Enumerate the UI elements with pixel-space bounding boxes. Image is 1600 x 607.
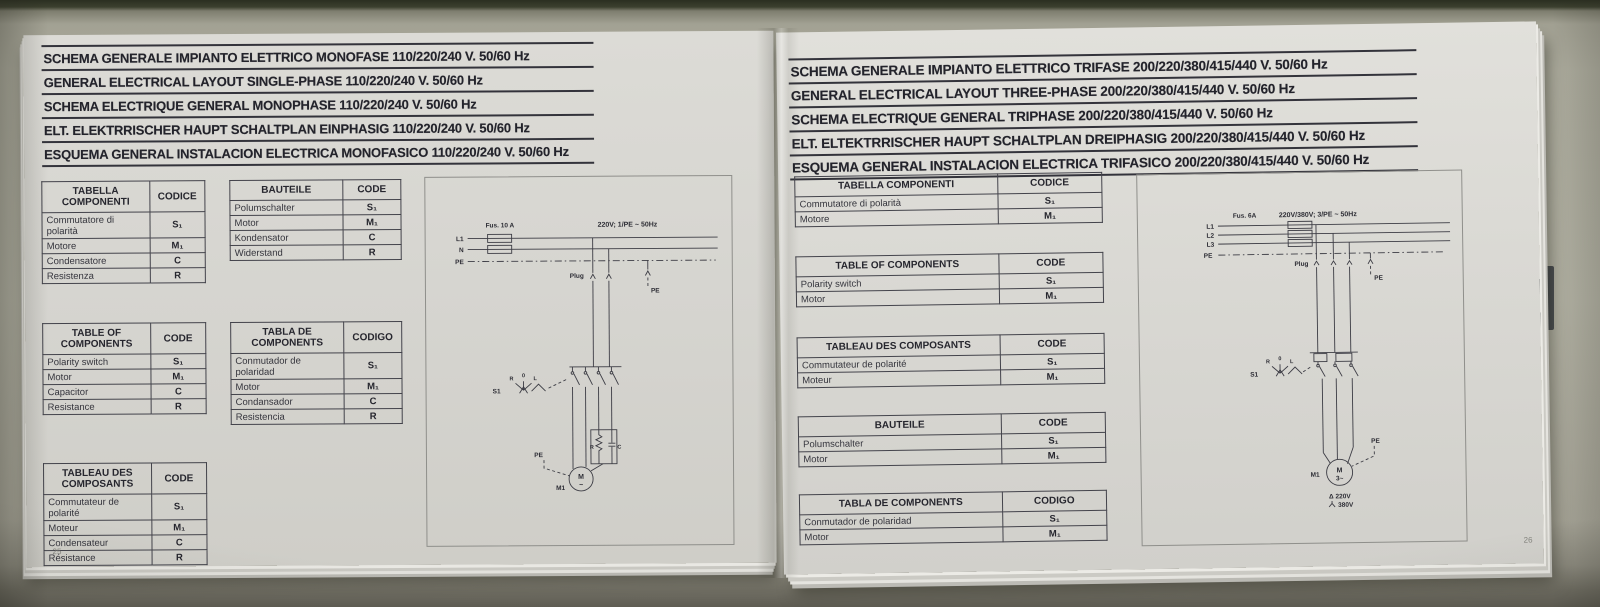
title-line: SCHEMA ELECTRIQUE GENERAL MONOPHASE 110/… [42, 92, 594, 119]
supply-label: 220V; 1/PE ~ 50Hz [598, 221, 658, 228]
title-line: GENERAL ELECTRICAL LAYOUT SINGLE-PHASE 1… [42, 68, 594, 95]
components-table-german: BAUTEILE CODE PolumschalterS₁ MotorM₁ [798, 412, 1107, 468]
fuse-symbol [488, 234, 512, 253]
table-row: MotorM₁ [800, 525, 1107, 545]
table-row: Commutatore di polaritàS₁ [42, 212, 205, 239]
table-header: CODE [1000, 333, 1105, 355]
table-row: CondensateurC [44, 535, 207, 551]
table-header: CODICE [149, 181, 205, 212]
table-row: CondensatoreC [42, 253, 205, 269]
three-phase-diagram: Fus. 6A 220V/380V; 3/PE ~ 50Hz L1 L2 L3 … [1136, 170, 1467, 547]
table-row: ResistenzaR [42, 268, 205, 284]
line-pe-label: PE [455, 259, 464, 266]
table-row: MoteurM₁ [44, 520, 207, 536]
plug-label: Plug [1294, 261, 1308, 268]
components-table-french: TABLEAU DES COMPOSANTS CODE Commutateur … [43, 462, 208, 566]
polarity-switch-symbol [1310, 352, 1360, 464]
motor-pe-label: PE [534, 452, 543, 459]
table-header: CODE [150, 323, 206, 354]
fuse-label: Fus. 10 A [486, 222, 515, 229]
supply-label: 220V/380V; 3/PE ~ 50Hz [1279, 211, 1358, 219]
pe-drop-label: PE [651, 287, 660, 294]
single-phase-schematic: Fus. 10 A 220V; 1/PE ~ 50Hz L1 N PE [425, 176, 733, 546]
table-row: MotorM₁ [796, 287, 1103, 307]
table-row: MotoreM₁ [42, 238, 205, 254]
line-l1-label: L1 [1206, 224, 1214, 231]
left-title-block: SCHEMA GENERALE IMPIANTO ELETTRICO MONOF… [41, 42, 594, 167]
components-table-italian: TABELLA COMPONENTI CODICE Commutatore di… [794, 172, 1103, 228]
page-number: 26 [1524, 536, 1533, 545]
table-row: MotorM₁ [799, 447, 1106, 467]
position-l-label: L [1290, 359, 1294, 365]
capacitor-label: C [617, 445, 621, 451]
table-header: TABELLA COMPONENTI [42, 181, 150, 213]
table-header: TABLE OF COMPONENTS [43, 323, 151, 355]
motor-code-label: M1 [556, 485, 565, 492]
components-table-english: TABLE OF COMPONENTS CODE Polarity switch… [42, 322, 207, 415]
selector-switch-symbol [1272, 364, 1311, 377]
page-number: 25 [53, 547, 62, 556]
table-header: BAUTEILE [230, 180, 343, 201]
table-header: CODE [998, 252, 1103, 274]
title-line: ELT. ELEKTRRISCHER HAUPT SCHALTPLAN EINP… [42, 116, 594, 143]
line-n-label: N [459, 247, 464, 254]
table-row: MotorM₁ [230, 214, 401, 230]
selector-label: S1 [493, 388, 501, 395]
table-row: WiderstandR [230, 244, 401, 260]
table-row: ResistanceR [43, 399, 206, 415]
polarity-switch-symbol [569, 367, 622, 469]
resistor-capacitor-symbol [591, 430, 617, 471]
components-table-english: TABLE OF COMPONENTS CODE Polarity switch… [795, 252, 1104, 308]
three-phase-schematic: Fus. 6A 220V/380V; 3/PE ~ 50Hz L1 L2 L3 … [1137, 171, 1466, 546]
selector-switch-symbol [515, 379, 567, 393]
table-header: CODICE [997, 172, 1102, 194]
position-r-label: R [509, 376, 513, 382]
table-row: MoteurM₁ [798, 368, 1105, 388]
single-phase-diagram: Fus. 10 A 220V; 1/PE ~ 50Hz L1 N PE [424, 175, 734, 547]
motor-phase-label: ~ [579, 482, 583, 489]
table-row: RésistanceR [44, 550, 207, 566]
line-pe-label: PE [1204, 253, 1213, 260]
pe-drop-symbol [645, 260, 650, 288]
motor-symbol [1326, 446, 1375, 486]
left-page: SCHEMA GENERALE IMPIANTO ELETTRICO MONOF… [23, 31, 776, 568]
pe-drop-label: PE [1374, 275, 1383, 282]
line-l2-label: L2 [1206, 233, 1214, 240]
table-row: PolumschalterS₁ [230, 199, 401, 215]
motor-phase-label: 3~ [1336, 475, 1344, 482]
delta-voltage-label: Δ 220V [1329, 493, 1351, 500]
position-0-label: 0 [522, 373, 525, 379]
position-r-label: R [1266, 359, 1270, 365]
components-table-spanish: TABLA DE COMPONENTS CODIGO Conmutador de… [230, 321, 403, 425]
plug-symbol [1313, 224, 1353, 353]
table-row: CondansadorC [231, 393, 402, 409]
motor-code-label: M1 [1311, 472, 1321, 479]
table-row: Commutateur de polaritéS₁ [44, 494, 207, 521]
line-l3-label: L3 [1207, 242, 1215, 249]
right-title-block: SCHEMA GENERALE IMPIANTO ELETTRICO TRIFA… [788, 49, 1418, 180]
table-header: CODIGO [1002, 490, 1107, 512]
plug-symbol [590, 238, 612, 367]
title-line: SCHEMA GENERALE IMPIANTO ELETTRICO MONOF… [41, 44, 593, 71]
position-l-label: L [533, 376, 537, 382]
table-row: MotorM₁ [231, 378, 402, 394]
table-row: CapacitorC [43, 384, 206, 400]
table-row: KondensatorC [230, 229, 401, 245]
line-l1-label: L1 [456, 236, 464, 243]
star-symbol [1329, 501, 1335, 507]
components-table-french: TABLEAU DES COMPOSANTS CODE Commutateur … [797, 333, 1106, 389]
table-header: CODIGO [344, 321, 402, 352]
table-row: MotorM₁ [43, 369, 206, 385]
table-header: TABLEAU DES COMPOSANTS [43, 463, 151, 495]
book-photo: SCHEMA GENERALE IMPIANTO ELETTRICO MONOF… [0, 0, 1600, 607]
plug-label: Plug [570, 273, 584, 280]
position-0-label: 0 [1278, 356, 1281, 362]
fuse-label: Fus. 6A [1233, 213, 1257, 220]
components-table-german: BAUTEILE CODE PolumschalterS₁ MotorM₁ Ko… [229, 179, 401, 261]
table-row: ResistenciaR [231, 408, 402, 424]
motor-pe-label: PE [1371, 438, 1380, 445]
table-row: Conmutador de polaridadS₁ [231, 352, 402, 379]
selector-label: S1 [1250, 372, 1258, 379]
components-table-spanish: TABLA DE COMPONENTS CODIGO Conmutador de… [799, 490, 1108, 546]
motor-letter: M [578, 474, 584, 481]
components-table-italian: TABELLA COMPONENTI CODICE Commutatore di… [41, 180, 206, 284]
right-page: SCHEMA GENERALE IMPIANTO ELETTRICO TRIFA… [776, 21, 1544, 574]
table-row: MotoreM₁ [795, 207, 1102, 227]
motor-letter: M [1337, 467, 1343, 474]
resistor-label: R [590, 445, 594, 451]
table-header: CODE [1001, 412, 1106, 434]
table-row: Polarity switchS₁ [43, 354, 206, 370]
table-header: CODE [343, 179, 401, 199]
table-header: TABLA DE COMPONENTS [231, 322, 344, 354]
pe-drop-symbol [1368, 253, 1373, 277]
star-voltage-label: 380V [1338, 502, 1354, 509]
title-line: ESQUEMA GENERAL INSTALACION ELECTRICA MO… [42, 140, 594, 167]
table-header: CODE [151, 463, 207, 494]
